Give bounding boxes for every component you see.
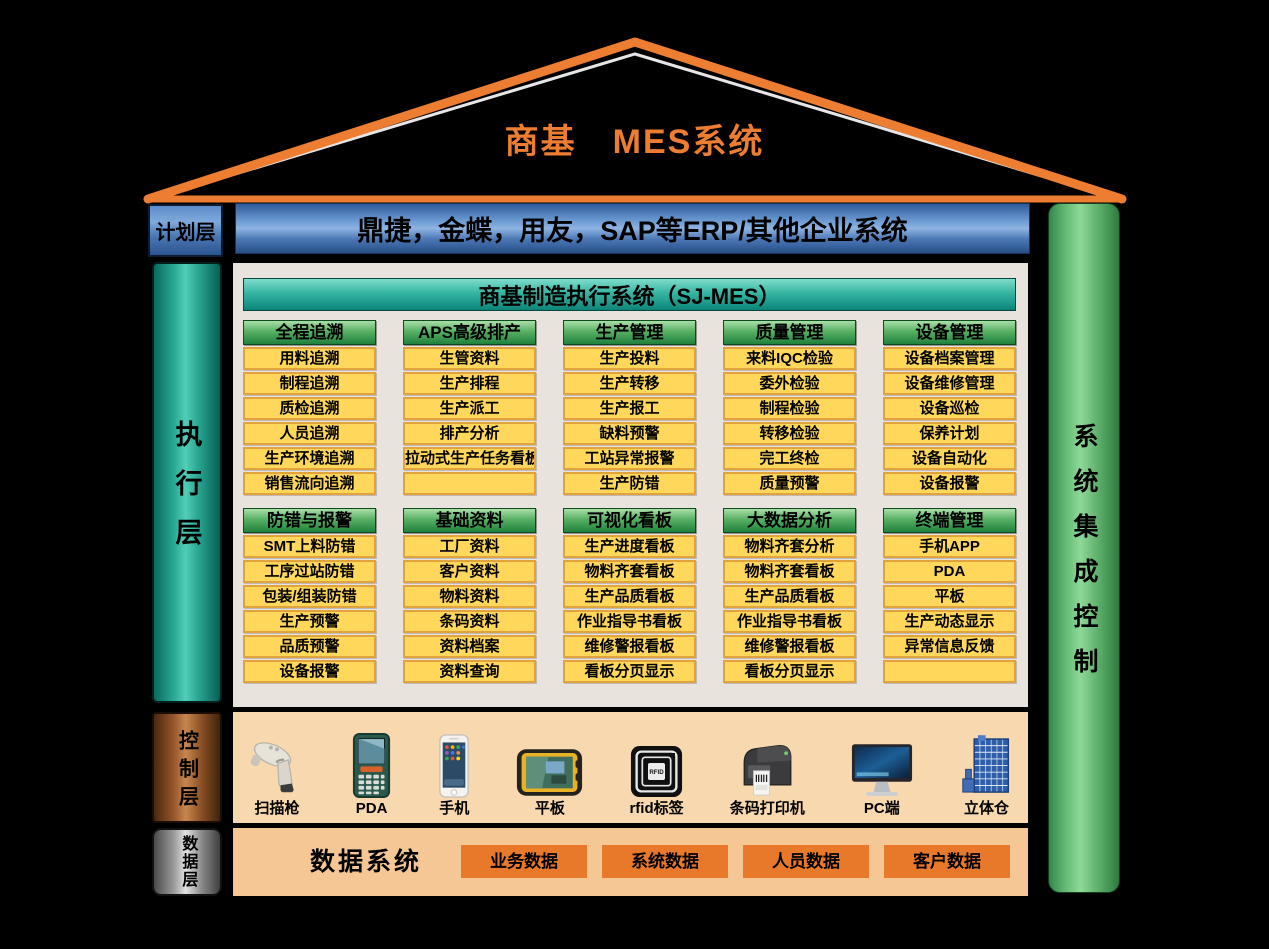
module-item: 生产防错 [563, 472, 696, 495]
system-integration-bar: 系统集成控制 [1048, 203, 1120, 893]
module-item: 设备报警 [243, 660, 376, 683]
control-layer-text: 控制层 [173, 722, 202, 814]
module-item: 设备维修管理 [883, 372, 1016, 395]
data-boxes: 业务数据系统数据人员数据客户数据 [461, 845, 1010, 878]
module-item: 设备档案管理 [883, 347, 1016, 370]
module-item: 制程检验 [723, 397, 856, 420]
module-item: 包装/组装防错 [243, 585, 376, 608]
module-item: PDA [883, 560, 1016, 583]
module-item: 转移检验 [723, 422, 856, 445]
device-label: rfid标签 [629, 798, 683, 820]
control-layer-label: 控制层 [152, 712, 222, 823]
module-row-2: 防错与报警SMT上料防错工序过站防错包装/组装防错生产预警品质预警设备报警基础资… [243, 508, 1016, 683]
roof-outline [0, 0, 1269, 212]
module-header: 终端管理 [883, 508, 1016, 533]
device-item: PDA [351, 718, 392, 820]
module-header: 可视化看板 [563, 508, 696, 533]
device-label: PC端 [864, 798, 900, 820]
device-item: 扫描枪 [249, 718, 305, 820]
module-item: 来料IQC检验 [723, 347, 856, 370]
module-item: 生产品质看板 [563, 585, 696, 608]
module-item: 维修警报看板 [563, 635, 696, 658]
module-row-1: 全程追溯用料追溯制程追溯质检追溯人员追溯生产环境追溯销售流向追溯APS高级排产生… [243, 320, 1016, 495]
execution-layer-text: 执行层 [168, 398, 207, 567]
module-item: 品质预警 [243, 635, 376, 658]
execution-layer-label: 执行层 [152, 262, 222, 703]
module-item: SMT上料防错 [243, 535, 376, 558]
module-item: 物料资料 [403, 585, 536, 608]
sjmes-panel-title: 商基制造执行系统（SJ-MES） [243, 278, 1016, 311]
data-box: 客户数据 [884, 845, 1010, 878]
module-header: 防错与报警 [243, 508, 376, 533]
module-item: 条码资料 [403, 610, 536, 633]
module-item: 保养计划 [883, 422, 1016, 445]
control-layer-panel: 扫描枪 PDA 手机 平板 [233, 712, 1028, 823]
module-item: 生产预警 [243, 610, 376, 633]
device-label: 手机 [439, 798, 469, 820]
module-group: 防错与报警SMT上料防错工序过站防错包装/组装防错生产预警品质预警设备报警 [243, 508, 376, 683]
module-header: 生产管理 [563, 320, 696, 345]
module-item: 销售流向追溯 [243, 472, 376, 495]
module-item: 作业指导书看板 [723, 610, 856, 633]
module-item: 制程追溯 [243, 372, 376, 395]
module-item: 生产转移 [563, 372, 696, 395]
module-group: APS高级排产生管资料生产排程生产派工排产分析拉动式生产任务看板 [403, 320, 536, 495]
plan-layer-label: 计划层 [148, 204, 223, 257]
module-group: 生产管理生产投料生产转移生产报工缺料预警工站异常报警生产防错 [563, 320, 696, 495]
module-item: 生产进度看板 [563, 535, 696, 558]
module-item: 生管资料 [403, 347, 536, 370]
smartphone-icon [438, 718, 470, 798]
module-item: 物料齐套分析 [723, 535, 856, 558]
module-group: 终端管理手机APPPDA平板生产动态显示异常信息反馈 [883, 508, 1016, 683]
module-group: 基础资料工厂资料客户资料物料资料条码资料资料档案资料查询 [403, 508, 536, 683]
rfid-tag-icon: RFID [630, 718, 683, 798]
module-item: 排产分析 [403, 422, 536, 445]
module-item: 生产报工 [563, 397, 696, 420]
module-item: 质检追溯 [243, 397, 376, 420]
module-header: 全程追溯 [243, 320, 376, 345]
execution-panel: 商基制造执行系统（SJ-MES） 全程追溯用料追溯制程追溯质检追溯人员追溯生产环… [233, 263, 1028, 707]
module-item: 生产派工 [403, 397, 536, 420]
module-group: 质量管理来料IQC检验委外检验制程检验转移检验完工终检质量预警 [723, 320, 856, 495]
module-item: 物料齐套看板 [563, 560, 696, 583]
module-item: 维修警报看板 [723, 635, 856, 658]
data-box: 人员数据 [743, 845, 869, 878]
module-item: 完工终检 [723, 447, 856, 470]
device-item: RFID rfid标签 [629, 718, 683, 820]
module-item [883, 660, 1016, 683]
warehouse-rack-icon [959, 718, 1014, 798]
module-group: 大数据分析物料齐套分析物料齐套看板生产品质看板作业指导书看板维修警报看板看板分页… [723, 508, 856, 683]
svg-text:RFID: RFID [649, 769, 664, 776]
module-header: APS高级排产 [403, 320, 536, 345]
data-box: 系统数据 [602, 845, 728, 878]
device-label: 扫描枪 [254, 798, 299, 820]
device-item: 条码打印机 [730, 718, 805, 820]
module-item: 看板分页显示 [723, 660, 856, 683]
device-item: 手机 [438, 718, 470, 820]
module-item: 工序过站防错 [243, 560, 376, 583]
module-item: 生产投料 [563, 347, 696, 370]
module-item: 资料查询 [403, 660, 536, 683]
device-item: PC端 [851, 718, 913, 820]
device-item: 平板 [516, 718, 583, 820]
erp-systems-bar: 鼎捷，金蝶，用友，SAP等ERP/其他企业系统 [235, 203, 1030, 254]
module-item: 物料齐套看板 [723, 560, 856, 583]
module-item: 平板 [883, 585, 1016, 608]
module-item: 生产动态显示 [883, 610, 1016, 633]
module-item: 工站异常报警 [563, 447, 696, 470]
module-header: 大数据分析 [723, 508, 856, 533]
module-group: 全程追溯用料追溯制程追溯质检追溯人员追溯生产环境追溯销售流向追溯 [243, 320, 376, 495]
module-item: 异常信息反馈 [883, 635, 1016, 658]
module-item: 生产排程 [403, 372, 536, 395]
module-item: 用料追溯 [243, 347, 376, 370]
module-item: 质量预警 [723, 472, 856, 495]
module-item: 手机APP [883, 535, 1016, 558]
module-item: 人员追溯 [243, 422, 376, 445]
module-item: 看板分页显示 [563, 660, 696, 683]
device-item: 立体仓 [959, 718, 1014, 820]
rugged-tablet-icon [516, 718, 583, 798]
module-header: 基础资料 [403, 508, 536, 533]
module-item: 设备报警 [883, 472, 1016, 495]
module-item: 生产品质看板 [723, 585, 856, 608]
data-system-label: 数据系统 [281, 828, 451, 896]
device-label: PDA [356, 798, 388, 820]
module-item: 拉动式生产任务看板 [403, 447, 536, 470]
module-item: 生产环境追溯 [243, 447, 376, 470]
module-item: 设备自动化 [883, 447, 1016, 470]
module-item: 设备巡检 [883, 397, 1016, 420]
module-group: 可视化看板生产进度看板物料齐套看板生产品质看板作业指导书看板维修警报看板看板分页… [563, 508, 696, 683]
system-integration-text: 系统集成控制 [1066, 403, 1102, 693]
module-item: 客户资料 [403, 560, 536, 583]
data-layer-text: 数据层 [179, 835, 196, 889]
device-label: 立体仓 [964, 798, 1009, 820]
data-layer-label: 数据层 [152, 828, 222, 896]
module-item: 委外检验 [723, 372, 856, 395]
data-layer-panel: 数据系统 业务数据系统数据人员数据客户数据 [233, 828, 1028, 896]
module-item: 作业指导书看板 [563, 610, 696, 633]
mes-architecture-diagram: 商基 MES系统 计划层 鼎捷，金蝶，用友，SAP等ERP/其他企业系统 执行层… [0, 0, 1269, 949]
data-box: 业务数据 [461, 845, 587, 878]
desktop-monitor-icon [851, 718, 913, 798]
module-item: 工厂资料 [403, 535, 536, 558]
module-header: 设备管理 [883, 320, 1016, 345]
barcode-scanner-icon [249, 718, 305, 798]
device-label: 平板 [535, 798, 565, 820]
module-item: 缺料预警 [563, 422, 696, 445]
module-item: 资料档案 [403, 635, 536, 658]
module-header: 质量管理 [723, 320, 856, 345]
pda-handheld-icon [351, 718, 392, 798]
device-label: 条码打印机 [730, 798, 805, 820]
barcode-printer-icon [735, 718, 800, 798]
module-item [403, 472, 536, 495]
diagram-title: 商基 MES系统 [0, 114, 1269, 163]
module-group: 设备管理设备档案管理设备维修管理设备巡检保养计划设备自动化设备报警 [883, 320, 1016, 495]
